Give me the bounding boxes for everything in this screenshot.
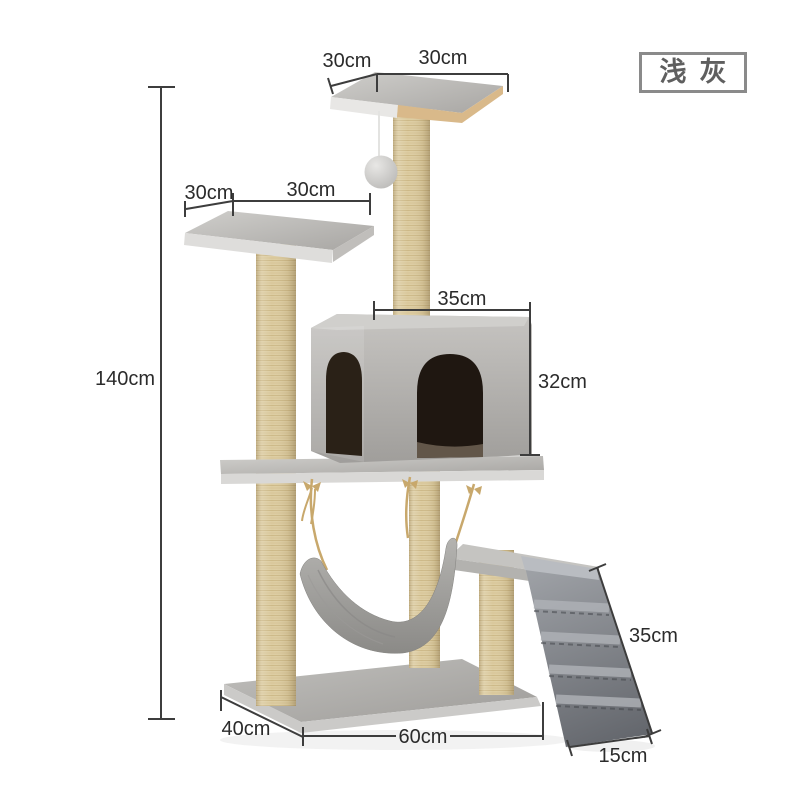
hammock-rope-left bbox=[311, 479, 327, 570]
dim-base-width-label: 60cm bbox=[399, 726, 448, 748]
dim-upper-platform: 30cm 30cm bbox=[185, 179, 370, 217]
upper-left-platform bbox=[184, 211, 374, 263]
dim-height-label: 140cm bbox=[95, 368, 155, 390]
cat-tree-illustration: 140cm 30cm 30cm 30cm 30cm 35cm 32cm 40cm… bbox=[0, 0, 800, 800]
dim-condo-height-label: 32cm bbox=[538, 371, 587, 393]
variant-label-box: 浅灰 bbox=[639, 52, 747, 93]
dim-top-width-label: 30cm bbox=[419, 47, 468, 69]
dim-top-depth-label: 30cm bbox=[323, 50, 372, 72]
floor-shadow bbox=[220, 730, 570, 750]
product-dimension-image: 140cm 30cm 30cm 30cm 30cm 35cm 32cm 40cm… bbox=[0, 0, 800, 800]
hammock bbox=[300, 477, 482, 653]
dim-base-depth-label: 40cm bbox=[222, 718, 271, 740]
condo-house bbox=[311, 314, 532, 463]
condo-side-opening bbox=[326, 352, 362, 456]
dim-condo-height: 32cm bbox=[520, 302, 587, 455]
dim-ramp-length-label: 35cm bbox=[629, 625, 678, 647]
dim-height: 140cm bbox=[95, 87, 175, 719]
dim-condo-width-label: 35cm bbox=[438, 288, 487, 310]
dim-upper-width-label: 30cm bbox=[287, 179, 336, 201]
pompom-ball bbox=[365, 156, 398, 189]
center-post bbox=[393, 100, 430, 322]
variant-label-text: 浅灰 bbox=[660, 59, 740, 86]
dim-upper-depth-label: 30cm bbox=[185, 182, 234, 204]
ramp bbox=[521, 556, 655, 752]
condo-front-opening bbox=[417, 354, 483, 458]
cat-tree bbox=[184, 72, 655, 752]
dim-ramp-width-label: 15cm bbox=[599, 745, 648, 767]
